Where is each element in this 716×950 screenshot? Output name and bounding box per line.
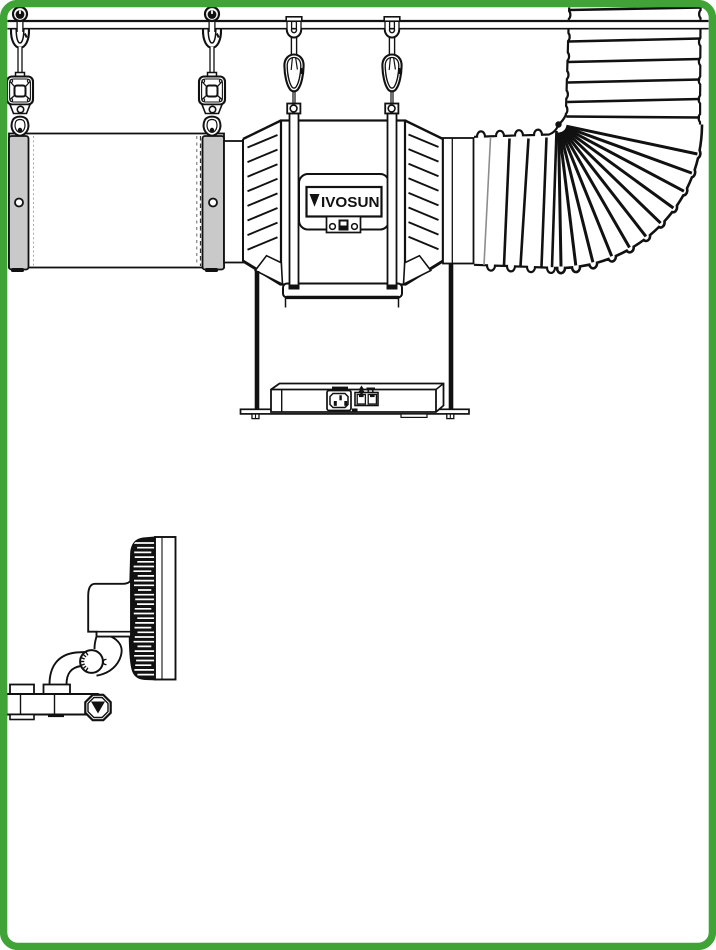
svg-text:IVOSUN: IVOSUN [321,194,380,211]
